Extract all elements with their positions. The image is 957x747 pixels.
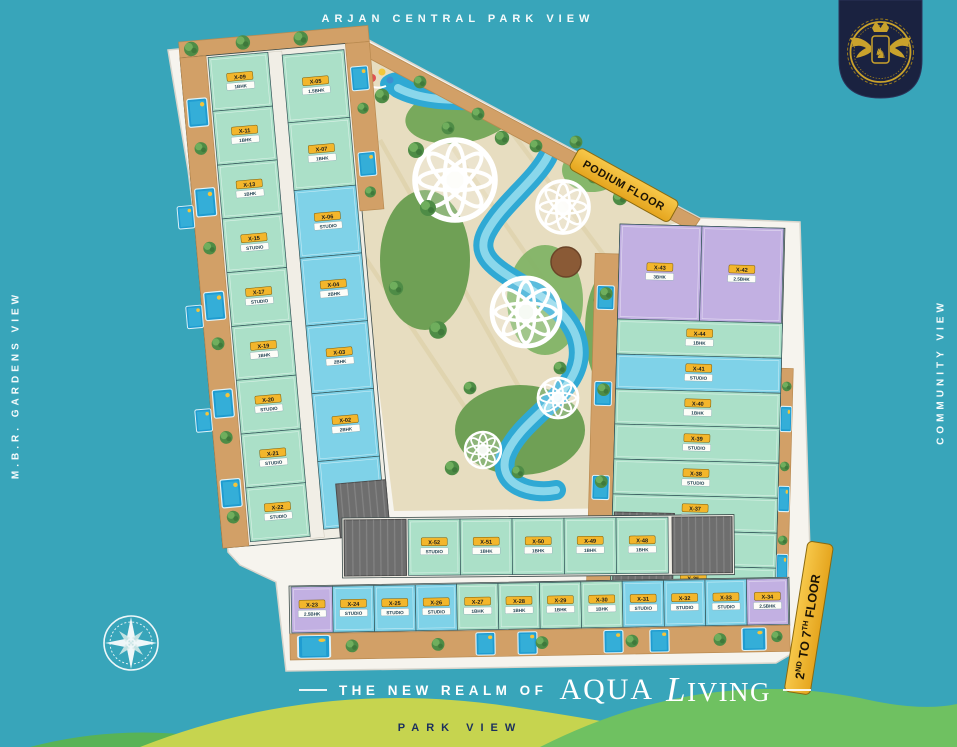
unit-number: X-41 [693, 366, 705, 372]
unit-X-31: X-31STUDIO [622, 580, 664, 627]
unit-number: X-21 [267, 451, 279, 458]
unit-type: 1BHK [532, 548, 545, 553]
unit-number: X-05 [309, 79, 321, 86]
unit-X-03: X-032BHK [306, 321, 374, 394]
unit-number: X-38 [690, 471, 702, 477]
unit-X-11: X-111BHK [213, 106, 277, 165]
unit-type: STUDIO [635, 606, 653, 611]
unit-X-29: X-291BHK [539, 582, 581, 629]
unit-number: X-06 [321, 214, 333, 221]
unit-type: 2.5BHK [733, 276, 750, 281]
unit-X-51: X-511BHK [460, 519, 512, 575]
unit-number: X-40 [692, 401, 704, 407]
unit-X-02: X-022BHK [312, 388, 380, 461]
unit-X-21: X-21STUDIO [241, 429, 305, 488]
unit-number: X-42 [736, 268, 748, 274]
unit-type: STUDIO [717, 604, 735, 609]
unit-number: X-04 [327, 282, 340, 289]
bottom-row: X-232.5BHKX-24STUDIOX-25STUDIOX-26STUDIO… [289, 577, 790, 660]
unit-number: X-22 [271, 505, 283, 512]
unit-X-26: X-26STUDIO [415, 584, 457, 631]
unit-type: 1BHK [636, 547, 649, 552]
unit-X-48: X-481BHK [616, 517, 668, 573]
unit-type: STUDIO [428, 609, 446, 614]
unit-number: X-39 [691, 436, 703, 442]
unit-X-41: X-41STUDIO [616, 354, 782, 393]
unit-X-07: X-071BHK [288, 117, 356, 190]
unit-number: X-50 [532, 539, 544, 545]
unit-number: X-52 [428, 540, 440, 546]
middle-strip-units: X-52STUDIOX-511BHKX-501BHKX-491BHKX-481B… [408, 517, 668, 575]
unit-number: X-44 [694, 331, 707, 337]
unit-type: STUDIO [687, 480, 705, 485]
unit-X-15: X-15STUDIO [222, 214, 286, 273]
unit-type: STUDIO [345, 611, 363, 616]
unit-type: 3BHK [653, 274, 666, 279]
unit-type: 1BHK [480, 549, 493, 554]
unit-X-39: X-39STUDIO [614, 424, 780, 463]
tagline-right-dash [783, 689, 811, 691]
unit-X-19: X-191BHK [232, 321, 296, 380]
unit-number: X-25 [389, 601, 401, 607]
unit-number: X-26 [430, 600, 442, 606]
unit-X-32: X-32STUDIO [664, 580, 706, 627]
unit-number: X-34 [761, 595, 774, 601]
unit-X-30: X-301BHK [581, 581, 623, 628]
tagline-prefix: THE NEW REALM OF [339, 683, 548, 698]
bottom-row-units: X-232.5BHKX-24STUDIOX-25STUDIOX-26STUDIO… [291, 578, 789, 633]
unit-X-40: X-401BHK [615, 389, 781, 428]
compass-rose-icon [104, 616, 158, 670]
unit-X-13: X-131BHK [217, 160, 281, 219]
unit-number: X-32 [679, 596, 691, 602]
unit-number: X-23 [306, 602, 318, 608]
unit-X-25: X-25STUDIO [374, 585, 416, 632]
unit-number: X-48 [636, 538, 648, 544]
unit-X-43: X-433BHK [618, 224, 702, 321]
unit-number: X-37 [689, 506, 701, 512]
unit-X-09: X-091BHK [208, 52, 272, 111]
unit-X-06: X-06STUDIO [294, 185, 362, 258]
unit-number: X-11 [239, 128, 251, 135]
unit-number: X-31 [637, 597, 649, 603]
unit-number: X-28 [513, 599, 525, 605]
left-view-label: M.B.R. GARDENS VIEW [11, 291, 22, 479]
unit-X-05: X-051.5BHK [282, 50, 350, 123]
aqua-living-podium-plan: X-091BHKX-111BHKX-131BHKX-15STUDIOX-17ST… [0, 0, 957, 747]
unit-number: X-03 [333, 350, 345, 357]
unit-type: STUDIO [676, 605, 694, 610]
unit-type: 1BHK [584, 548, 597, 553]
unit-number: X-13 [243, 182, 255, 189]
unit-X-24: X-24STUDIO [332, 586, 374, 633]
unit-number: X-43 [654, 265, 666, 271]
unit-type: 1BHK [691, 410, 704, 415]
round-deck [551, 247, 581, 277]
unit-number: X-07 [315, 147, 327, 154]
unit-type: STUDIO [690, 375, 708, 380]
unit-number: X-19 [257, 343, 269, 350]
unit-type: STUDIO [426, 549, 444, 554]
unit-type: 1BHK [554, 607, 567, 612]
unit-number: X-49 [584, 539, 596, 545]
unit-number: X-17 [253, 290, 265, 297]
unit-number: X-51 [480, 540, 492, 546]
unit-number: X-29 [554, 598, 566, 604]
tagline: THE NEW REALM OF AQUA LIVING [280, 670, 830, 710]
unit-X-34: X-342.5BHK [746, 578, 788, 625]
unit-type: 1BHK [693, 340, 706, 345]
unit-X-04: X-042BHK [300, 253, 368, 326]
unit-X-33: X-33STUDIO [705, 579, 747, 626]
unit-X-28: X-281BHK [498, 583, 540, 630]
unit-X-52: X-52STUDIO [408, 519, 460, 575]
unit-type: 2.5BHK [759, 603, 776, 608]
unit-number: X-15 [248, 236, 260, 243]
unit-type: 1BHK [513, 608, 526, 613]
unit-number: X-20 [262, 397, 274, 404]
unit-X-49: X-491BHK [564, 518, 616, 574]
unit-type: 2.5BHK [304, 611, 321, 616]
unit-X-27: X-271BHK [457, 583, 499, 630]
unit-X-50: X-501BHK [512, 518, 564, 574]
right-view-label: COMMUNITY VIEW [936, 299, 947, 445]
unit-X-42: X-422.5BHK [699, 226, 783, 323]
unit-number: X-24 [347, 602, 360, 608]
unit-type: 1BHK [471, 609, 484, 614]
unit-number: X-33 [720, 595, 732, 601]
brand-word-living: LIVING [666, 670, 771, 710]
horse-icon: ♞ [874, 45, 887, 61]
unit-number: X-02 [339, 417, 351, 424]
park-view-label: PARK VIEW [348, 722, 572, 734]
unit-X-17: X-17STUDIO [227, 268, 291, 327]
unit-X-20: X-20STUDIO [236, 375, 300, 434]
unit-number: X-27 [472, 600, 484, 606]
site-plan-canvas: X-091BHKX-111BHKX-131BHKX-15STUDIOX-17ST… [0, 0, 957, 747]
right-wing-head-units: X-433BHKX-422.5BHK [618, 224, 784, 323]
unit-X-23: X-232.5BHK [291, 586, 333, 633]
top-view-label: ARJAN CENTRAL PARK VIEW [258, 13, 658, 25]
middle-strip: X-52STUDIOX-511BHKX-501BHKX-491BHKX-481B… [342, 515, 735, 578]
unit-number: X-30 [596, 597, 608, 603]
unit-type: STUDIO [386, 610, 404, 615]
crest-logo: ♞ [839, 0, 922, 98]
brand-word-aqua: AQUA [559, 673, 654, 707]
unit-X-22: X-22STUDIO [246, 483, 310, 542]
unit-X-44: X-441BHK [617, 319, 783, 358]
unit-type: STUDIO [688, 445, 706, 450]
tagline-left-dash [299, 689, 327, 691]
unit-number: X-09 [234, 74, 246, 81]
unit-X-38: X-38STUDIO [613, 459, 779, 498]
unit-type: 1BHK [596, 606, 609, 611]
